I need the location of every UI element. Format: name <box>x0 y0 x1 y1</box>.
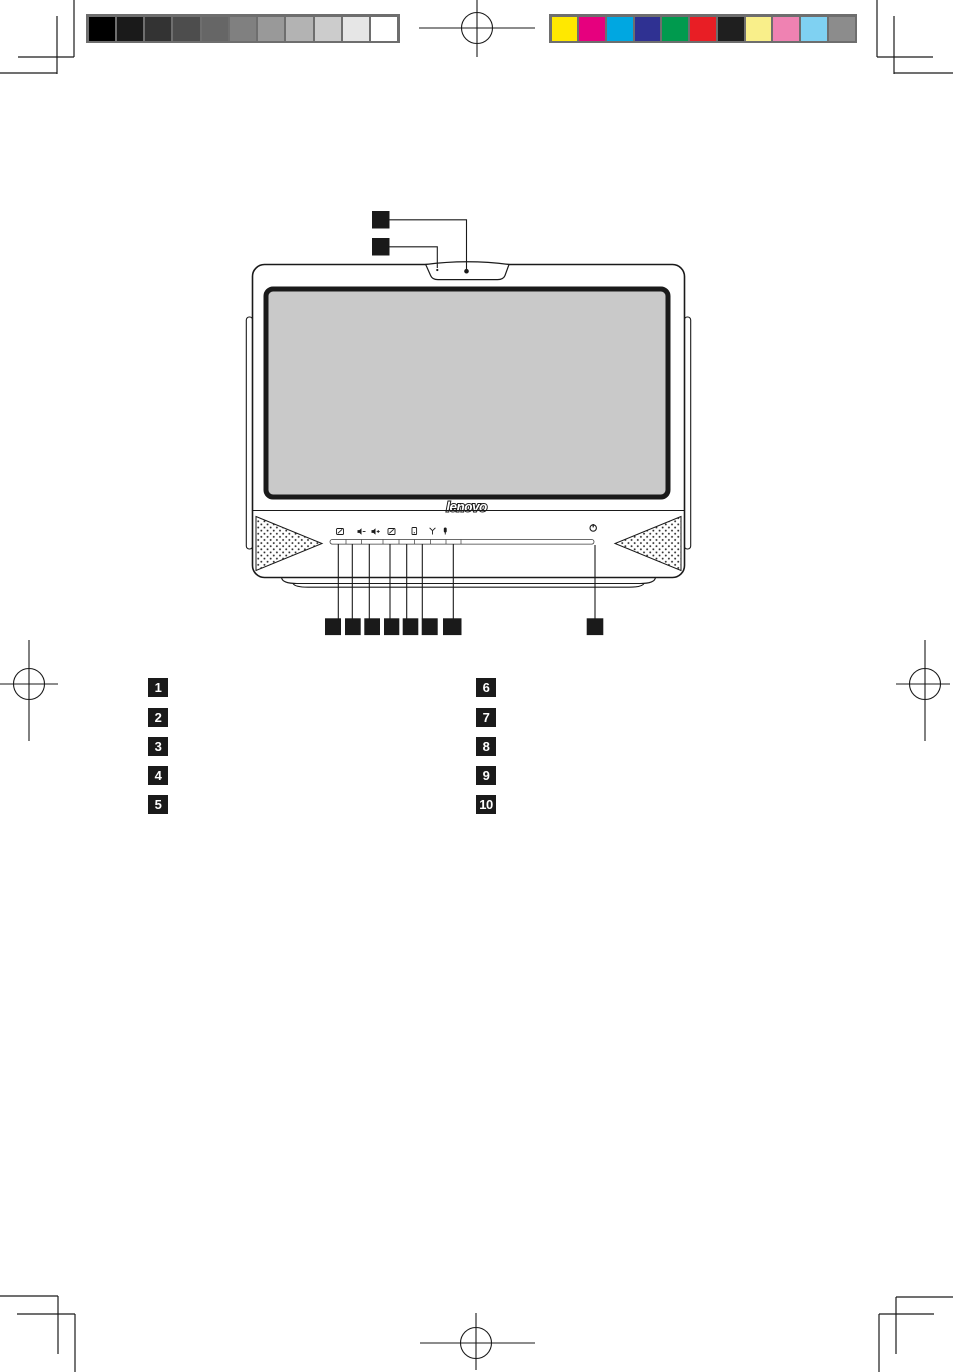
color-swatch <box>829 17 855 41</box>
callout-marker-7 <box>403 618 419 635</box>
grayscale-swatch <box>173 17 199 41</box>
registration-target-top-center <box>419 0 535 57</box>
grayscale-swatch <box>371 17 397 41</box>
callout-markers-bottom <box>325 618 603 635</box>
manual-page: lenovo <box>0 0 953 1372</box>
grayscale-swatch <box>145 17 171 41</box>
legend-number-8: 8 <box>476 737 496 756</box>
screen <box>266 289 668 497</box>
computer-illustration: lenovo <box>246 211 690 635</box>
grayscale-swatch <box>286 17 312 41</box>
front-indicator-strip <box>330 540 594 545</box>
grayscale-swatch <box>117 17 143 41</box>
grayscale-swatch <box>343 17 369 41</box>
grayscale-swatch <box>89 17 115 41</box>
legend-number-5: 5 <box>148 795 168 814</box>
brand-logo: lenovo <box>446 500 487 515</box>
legend-number-3: 3 <box>148 737 168 756</box>
grayscale-swatch <box>230 17 256 41</box>
color-swatch <box>801 17 827 41</box>
callout-marker-10 <box>587 618 604 635</box>
color-swatch <box>718 17 744 41</box>
corner-mark-top-left <box>0 0 74 74</box>
color-swatch <box>746 17 772 41</box>
camera-lens-dot <box>464 269 469 274</box>
legend-number-10: 10 <box>476 795 496 814</box>
registration-target-bottom-center <box>420 1313 535 1370</box>
grayscale-swatch <box>258 17 284 41</box>
registration-target-right-middle <box>896 640 950 741</box>
color-swatch <box>607 17 633 41</box>
callout-marker-5 <box>364 618 380 635</box>
corner-mark-bottom-right <box>879 1297 953 1372</box>
color-swatch <box>773 17 799 41</box>
legend-number-4: 4 <box>148 766 168 785</box>
callout-marker-8 <box>422 618 438 635</box>
callout-marker-2 <box>372 238 390 256</box>
color-swatch <box>662 17 688 41</box>
legend-number-9: 9 <box>476 766 496 785</box>
callout-marker-9 <box>443 618 462 635</box>
microphone-hole <box>436 269 438 271</box>
registration-target-left-middle <box>0 640 58 741</box>
callout-marker-1 <box>372 211 390 229</box>
color-swatch <box>552 17 578 41</box>
legend-number-2: 2 <box>148 708 168 727</box>
color-calibration-bar <box>549 14 857 43</box>
callout-marker-3 <box>325 618 341 635</box>
grayscale-swatch <box>315 17 341 41</box>
callout-marker-4 <box>345 618 361 635</box>
corner-mark-top-right <box>877 0 953 74</box>
legend-number-7: 7 <box>476 708 496 727</box>
corner-mark-bottom-left <box>0 1296 75 1372</box>
color-swatch <box>635 17 661 41</box>
legend-number-6: 6 <box>476 678 496 697</box>
grayscale-swatch <box>202 17 228 41</box>
callout-marker-6 <box>384 618 399 635</box>
color-swatch <box>579 17 605 41</box>
legend-number-1: 1 <box>148 678 168 697</box>
color-swatch <box>690 17 716 41</box>
grayscale-calibration-bar <box>86 14 400 43</box>
stand-base <box>282 578 656 588</box>
